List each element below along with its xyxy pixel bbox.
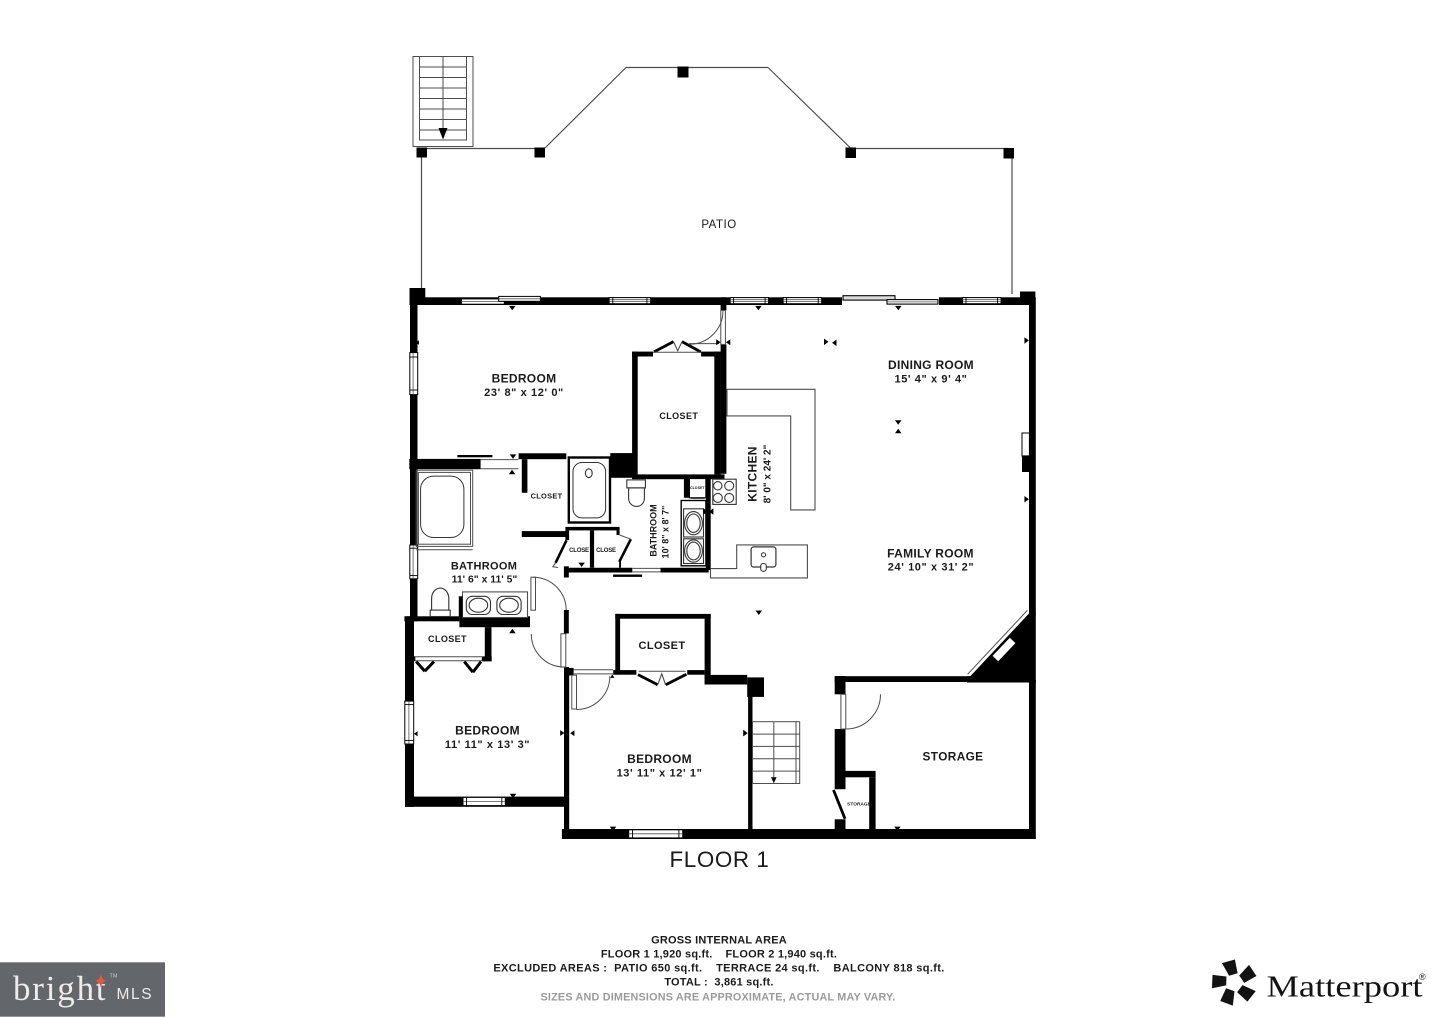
svg-text:10' 8" x 8' 7": 10' 8" x 8' 7" <box>661 506 671 559</box>
svg-text:CLOSET: CLOSET <box>659 411 698 421</box>
svg-text:11' 11" x 13' 3": 11' 11" x 13' 3" <box>445 739 530 751</box>
svg-text:®: ® <box>1419 972 1426 982</box>
svg-text:24' 10" x 31' 2": 24' 10" x 31' 2" <box>888 562 974 574</box>
svg-text:15' 4" x 9' 4": 15' 4" x 9' 4" <box>895 374 968 386</box>
svg-text:GROSS INTERNAL AREA: GROSS INTERNAL AREA <box>651 935 787 947</box>
svg-text:EXCLUDED AREAS : PATIO 650 sq: EXCLUDED AREAS : PATIO 650 sq.ft. TERRAC… <box>493 963 944 975</box>
svg-text:CLOSET: CLOSET <box>638 640 685 652</box>
svg-text:PATIO: PATIO <box>701 219 736 231</box>
svg-text:DINING ROOM: DINING ROOM <box>888 358 974 372</box>
svg-text:13' 11" x 12' 1": 13' 11" x 12' 1" <box>617 768 703 780</box>
svg-text:BEDROOM: BEDROOM <box>492 372 557 386</box>
svg-text:23' 8" x 12' 0": 23' 8" x 12' 0" <box>484 387 564 399</box>
svg-text:CLOSE: CLOSE <box>596 548 616 554</box>
svg-text:MLS: MLS <box>117 986 154 1003</box>
svg-text:BEDROOM: BEDROOM <box>455 724 520 738</box>
svg-text:TOTAL : 3,861 sq.ft.: TOTAL : 3,861 sq.ft. <box>664 977 773 989</box>
svg-text:KITCHEN: KITCHEN <box>746 446 760 501</box>
svg-text:STORAGE: STORAGE <box>923 749 984 763</box>
svg-text:FLOOR 1 1,920 sq.ft. FLOOR: FLOOR 1 1,920 sq.ft. FLOOR 2 1,940 sq.ft… <box>601 949 837 961</box>
svg-text:11' 6" x 11' 5": 11' 6" x 11' 5" <box>452 575 518 586</box>
svg-text:FLOOR 1: FLOOR 1 <box>669 847 769 872</box>
svg-text:BEDROOM: BEDROOM <box>627 752 692 766</box>
svg-text:8' 0" x 24' 2": 8' 0" x 24' 2" <box>763 444 774 503</box>
svg-text:bright: bright <box>13 969 107 1008</box>
svg-text:CLOSET: CLOSET <box>428 634 467 644</box>
svg-text:SIZES AND DIMENSIONS ARE APPRO: SIZES AND DIMENSIONS ARE APPROXIMATE, AC… <box>541 992 896 1004</box>
svg-text:CLOSET: CLOSET <box>690 486 705 490</box>
svg-text:CLOSE: CLOSE <box>569 548 589 554</box>
svg-text:FAMILY ROOM: FAMILY ROOM <box>887 547 974 561</box>
svg-text:CLOSET: CLOSET <box>531 492 563 501</box>
svg-text:Matterport: Matterport <box>1267 969 1423 1004</box>
svg-text:BATHROOM: BATHROOM <box>649 504 659 556</box>
svg-text:TM: TM <box>110 974 118 980</box>
svg-text:BATHROOM: BATHROOM <box>451 561 517 573</box>
svg-text:STORAGE: STORAGE <box>847 801 871 807</box>
